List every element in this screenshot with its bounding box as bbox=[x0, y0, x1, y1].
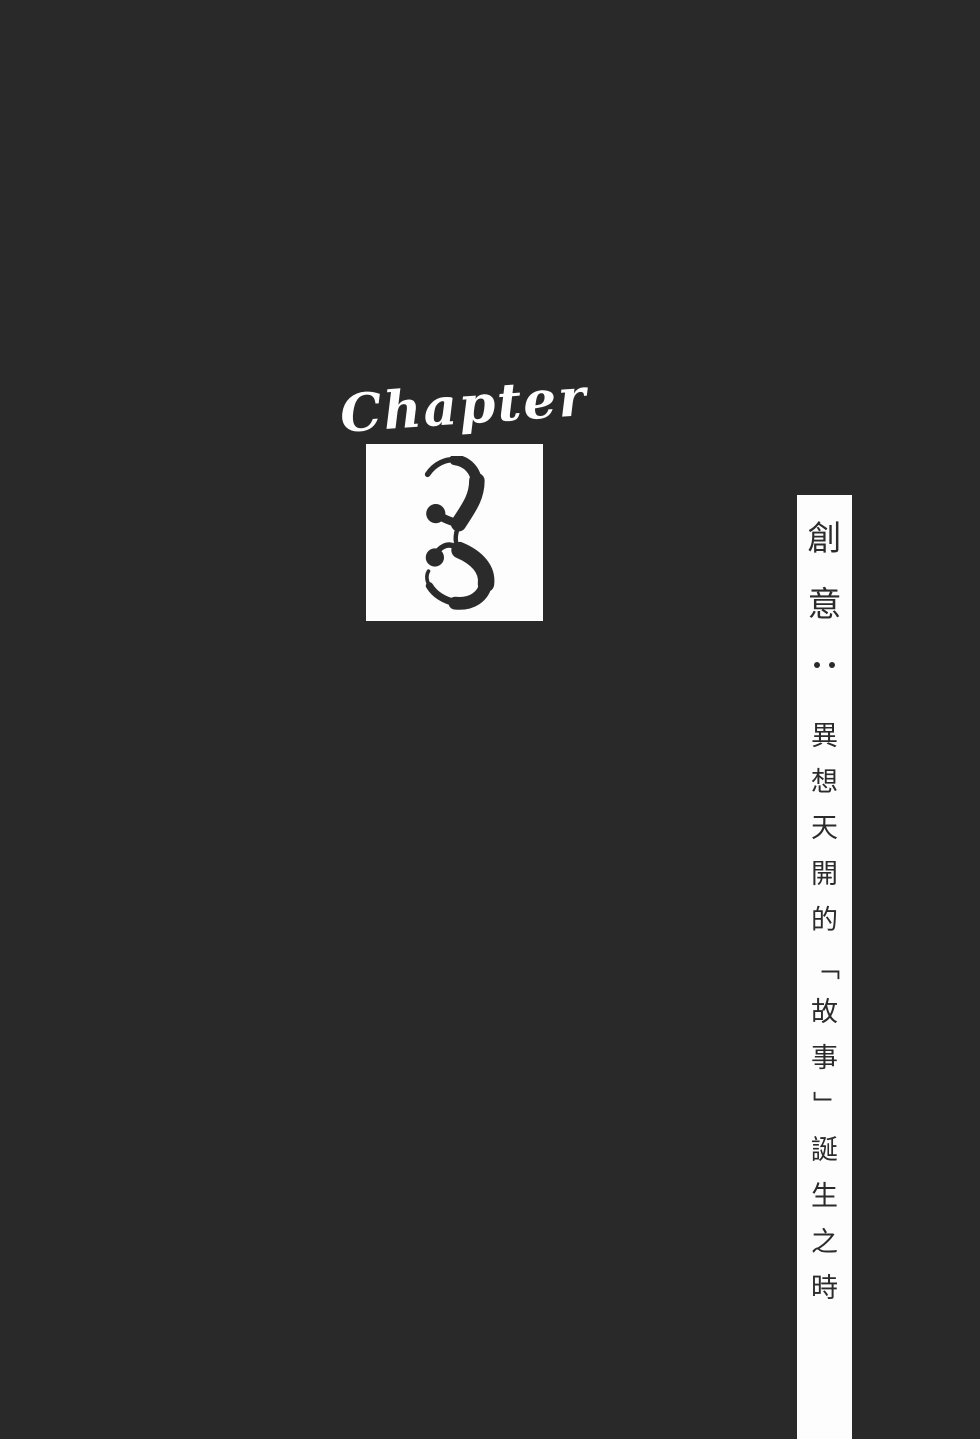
side-title-char: 」 bbox=[811, 1091, 838, 1118]
chapter-label: Chapter bbox=[338, 373, 573, 441]
chapter-number-box bbox=[366, 444, 543, 621]
side-title-char: 創 bbox=[808, 522, 842, 556]
side-title-strip: 創意 異想天開的「故事」誕生之時 bbox=[797, 495, 852, 1439]
vertical-colon bbox=[814, 662, 835, 668]
colon-dot bbox=[829, 662, 835, 668]
side-title-char: 誕 bbox=[811, 1137, 838, 1164]
side-title-char: 的 bbox=[811, 907, 838, 934]
side-title-char: 生 bbox=[811, 1183, 838, 1210]
side-title-char: 想 bbox=[811, 769, 838, 796]
numeral-3-icon bbox=[402, 456, 507, 616]
side-title-char: 意 bbox=[808, 588, 842, 622]
side-title-char: 「 bbox=[811, 953, 838, 980]
side-title-main: 創意 bbox=[808, 522, 842, 654]
side-title-char: 故 bbox=[811, 999, 838, 1026]
side-title-char: 天 bbox=[811, 815, 838, 842]
side-title-char: 開 bbox=[811, 861, 838, 888]
side-title-char: 時 bbox=[811, 1275, 838, 1302]
colon-dot bbox=[814, 662, 820, 668]
side-title-char: 事 bbox=[811, 1045, 838, 1072]
side-title-sub: 異想天開的「故事」誕生之時 bbox=[811, 723, 838, 1321]
side-title-char: 之 bbox=[811, 1229, 838, 1256]
book-page: { "page": { "background_color": "#292929… bbox=[0, 0, 980, 1439]
side-title-char: 異 bbox=[811, 723, 838, 750]
